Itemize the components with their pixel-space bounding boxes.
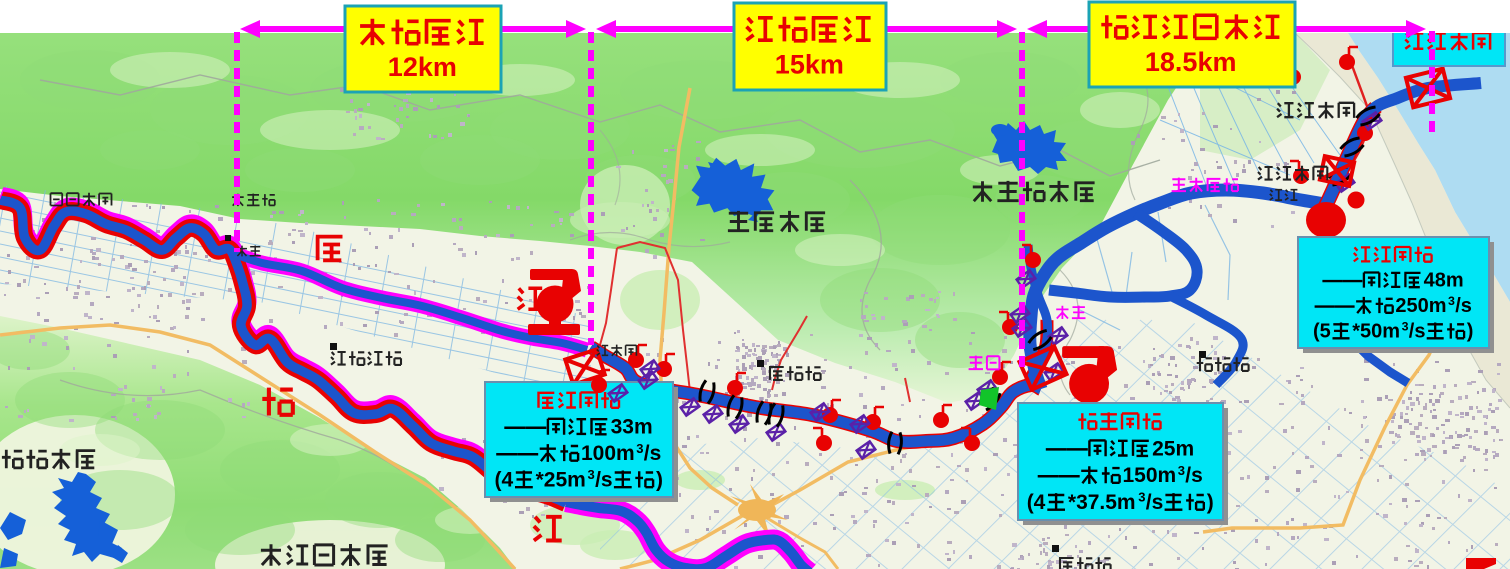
svg-text:/s: /s [1409, 321, 1426, 343]
svg-text:(4: (4 [1027, 491, 1046, 514]
svg-text:150m: 150m [1123, 464, 1177, 487]
svg-text:3: 3 [636, 441, 643, 456]
svg-text:): ) [1207, 491, 1214, 514]
svg-text:): ) [656, 469, 663, 492]
svg-text:3: 3 [1178, 463, 1185, 478]
svg-text:25m: 25m [1152, 437, 1194, 460]
svg-text:/s: /s [644, 442, 662, 465]
svg-text:100m: 100m [581, 442, 635, 465]
svg-text:/s: /s [1455, 295, 1472, 317]
svg-text:3: 3 [1448, 294, 1455, 308]
svg-text:15km: 15km [775, 49, 844, 79]
svg-text:/s: /s [595, 469, 613, 492]
svg-text:3: 3 [1138, 490, 1145, 505]
svg-text:/s: /s [1185, 464, 1203, 487]
svg-text:): ) [1467, 321, 1474, 343]
svg-text:3: 3 [588, 467, 595, 482]
svg-text:33m: 33m [611, 416, 653, 439]
svg-text:(5: (5 [1313, 321, 1331, 343]
svg-text:12km: 12km [388, 52, 457, 82]
svg-text:3: 3 [1402, 320, 1409, 334]
svg-text:*50m: *50m [1352, 321, 1400, 343]
svg-text:250m: 250m [1395, 295, 1446, 317]
svg-text:*37.5m: *37.5m [1068, 491, 1136, 514]
svg-text:18.5km: 18.5km [1145, 47, 1237, 77]
svg-text:/s: /s [1146, 491, 1164, 514]
svg-text:(4: (4 [495, 469, 514, 492]
svg-text:*25m: *25m [536, 469, 586, 492]
svg-text:48m: 48m [1424, 270, 1464, 292]
